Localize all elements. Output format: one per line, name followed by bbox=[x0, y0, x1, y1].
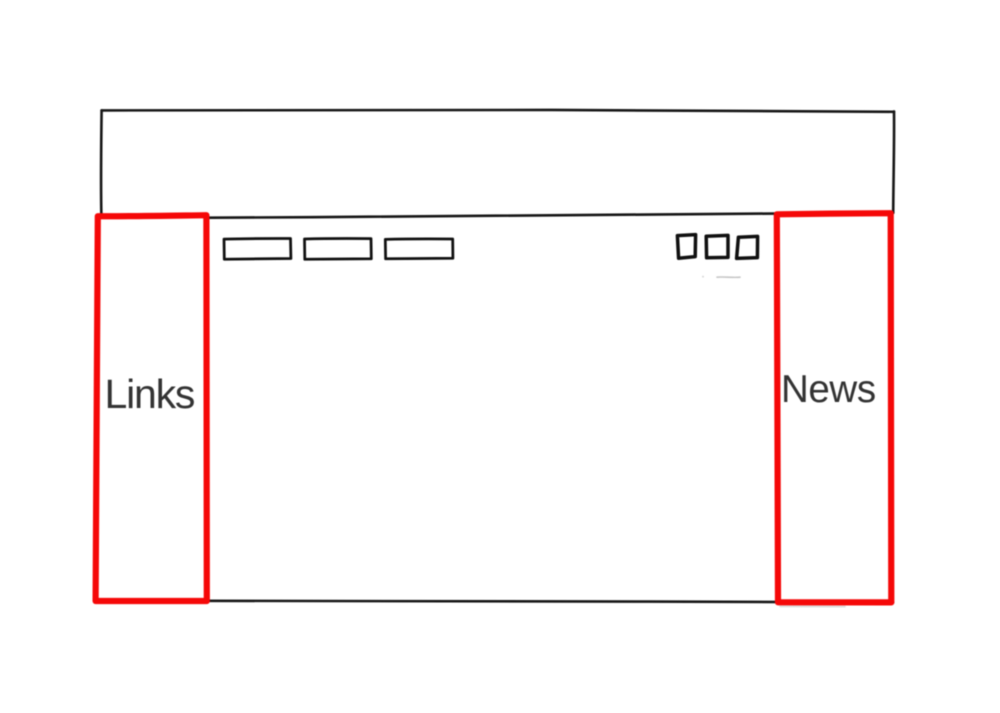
svg-text:News: News bbox=[781, 368, 876, 411]
svg-text:Links: Links bbox=[105, 371, 195, 417]
